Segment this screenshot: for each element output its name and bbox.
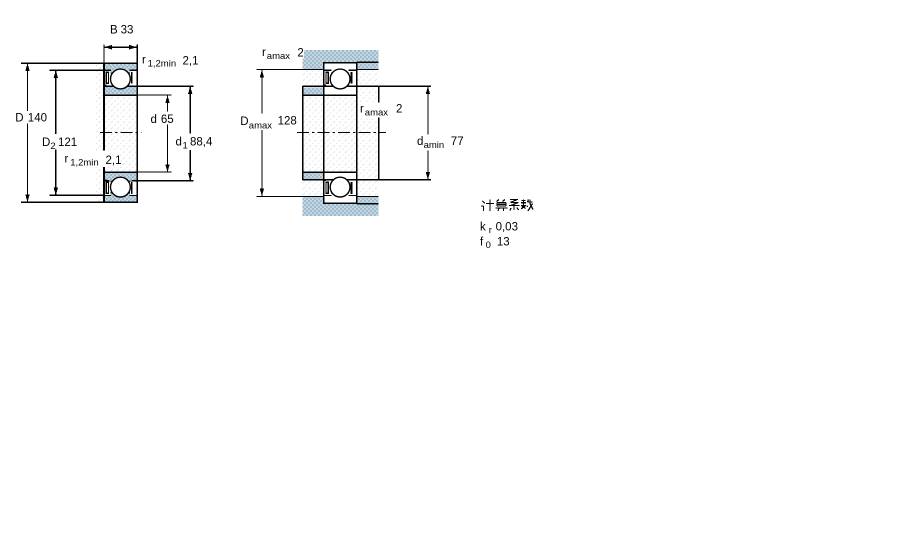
svg-text:d: d — [151, 114, 157, 126]
svg-text:r: r — [262, 47, 266, 59]
svg-text:amax: amax — [267, 51, 290, 62]
svg-text:k: k — [480, 222, 486, 234]
svg-text:r: r — [142, 55, 146, 67]
svg-text:D: D — [15, 113, 23, 125]
svg-text:121: 121 — [58, 137, 77, 149]
svg-text:140: 140 — [28, 113, 47, 125]
svg-text:amax: amax — [365, 108, 388, 119]
svg-text:r: r — [65, 154, 69, 166]
svg-text:65: 65 — [161, 114, 174, 126]
svg-text:33: 33 — [121, 25, 134, 37]
svg-text:0,03: 0,03 — [496, 222, 518, 234]
svg-text:r: r — [360, 104, 364, 116]
svg-text:B: B — [110, 25, 118, 37]
svg-text:13: 13 — [497, 237, 510, 249]
svg-text:2: 2 — [297, 47, 303, 59]
svg-text:88,4: 88,4 — [190, 137, 213, 149]
svg-text:77: 77 — [451, 136, 464, 148]
svg-text:D: D — [240, 116, 248, 128]
svg-text:1,2min: 1,2min — [148, 59, 177, 70]
svg-text:amax: amax — [249, 120, 272, 131]
svg-text:2: 2 — [396, 104, 402, 116]
svg-text:1: 1 — [183, 141, 188, 152]
svg-text:1,2min: 1,2min — [70, 158, 99, 169]
svg-text:2: 2 — [50, 141, 55, 152]
svg-text:128: 128 — [278, 116, 297, 128]
svg-text:2,1: 2,1 — [106, 155, 122, 167]
svg-text:r: r — [489, 225, 492, 236]
svg-text:0: 0 — [486, 240, 491, 251]
svg-text:amin: amin — [424, 140, 445, 151]
svg-text:D: D — [42, 137, 50, 149]
svg-text:2,1: 2,1 — [183, 56, 199, 68]
svg-text:d: d — [417, 136, 423, 148]
svg-text:d: d — [176, 137, 182, 149]
